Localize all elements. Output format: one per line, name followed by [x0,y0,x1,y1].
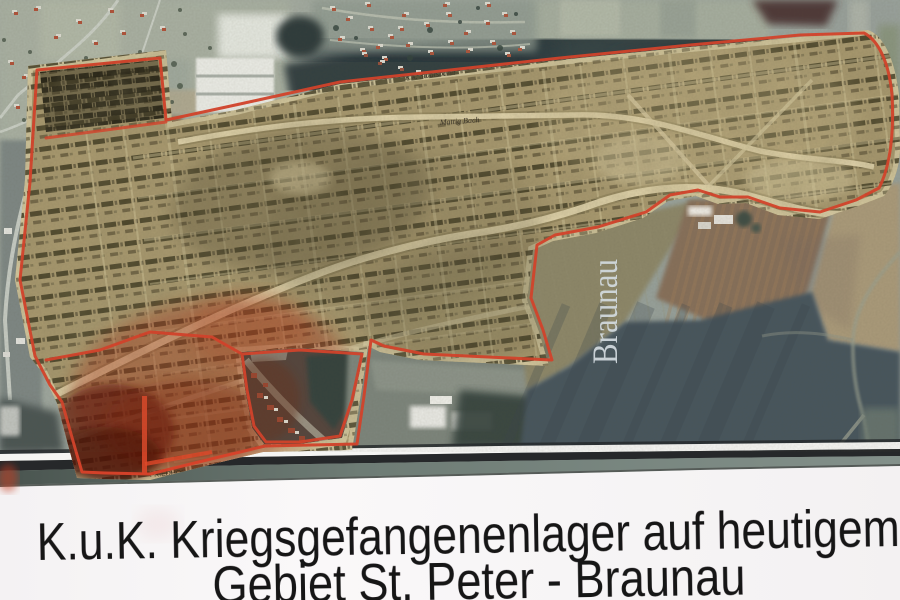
svg-text:Braunau: Braunau [585,259,625,364]
svg-text:Gebiet St. Peter - Braunau: Gebiet St. Peter - Braunau [212,548,746,600]
